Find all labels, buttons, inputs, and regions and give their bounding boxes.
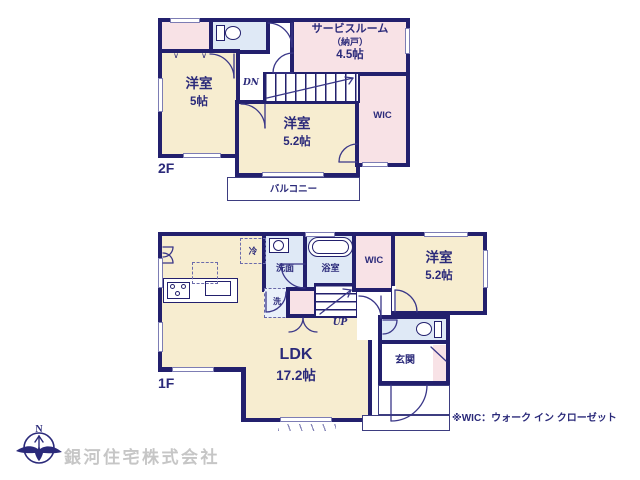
room-label-laundry: 洗 [264,297,290,307]
washbasin-bowl-icon [273,240,284,251]
window-hatch-ticks [278,424,336,431]
room-label-entrance: 玄関 [380,355,430,368]
toilet-bowl-icon-2f [225,26,241,40]
porch-step-1f [362,415,450,431]
window-2f [183,153,221,158]
room-name: LDK [246,345,346,365]
stairs-up-label: UP [330,318,350,329]
bedroom-door-gap-1f [392,286,396,311]
window-1f [280,417,332,422]
window-1f [424,232,468,237]
service-room-name: サービスルーム [295,23,405,37]
window-1f [158,322,163,352]
closet-door-mark: ∨ [170,51,182,61]
company-name: 銀河住宅株式会社 [64,443,220,468]
window-1f [483,250,488,288]
room-size: 5.2帖 [395,269,483,283]
closet-door-mark: ∨ [198,51,210,61]
floor-label-2f: 2F [158,160,192,178]
window-2f [405,28,410,54]
compass-icon: N [14,418,66,474]
toilet-bowl-icon-1f [416,322,432,336]
window-2f [362,162,388,167]
stove-burner-icon [170,284,175,289]
floorplan-page: バルコニー サービスルーム （納戸） 4.5帖 洋室 5帖 洋室 5.2帖 WI… [0,0,640,480]
stairs-down-label: DN [241,78,261,89]
window-1f [172,367,214,372]
room-name: 洋室 [247,116,347,133]
room-label-washroom: 洗面 [262,263,308,274]
floor-label-1f: 1F [158,375,192,393]
window-1f [158,258,163,288]
service-room-sub: （納戸） [295,37,405,48]
room-size: 5.2帖 [247,135,347,149]
porch-1f [378,385,450,415]
room-label-bedroom52-2f: 洋室 5.2帖 [247,116,347,149]
room-name: 洋室 [160,76,238,93]
room-size: 5帖 [160,95,238,109]
compass-north-label: N [35,424,43,435]
bathtub-inner-icon [312,240,349,254]
service-room-size: 4.5帖 [295,48,405,62]
toilet-tank-icon-1f [434,321,442,338]
room-size: 17.2帖 [246,368,346,385]
kitchen-cabinet [192,262,218,284]
wic-note: ※WIC：ウォーク イン クローゼット [452,413,637,426]
room-name: 洋室 [395,250,483,267]
room-label-service: サービスルーム （納戸） 4.5帖 [295,23,405,62]
shoe-closet-1f [433,345,446,381]
staircase-2f [263,72,360,103]
stove-burner-icon [181,284,186,289]
room-label-fridge: 冷 [240,246,266,257]
room-label-wic-1f: WIC [352,255,396,267]
room-label-bathroom: 浴室 [303,263,358,274]
window-2f [170,18,200,23]
room-label-ldk: LDK 17.2帖 [246,345,346,385]
stove-burner-icon [175,291,180,296]
room-label-bedroom52-1f: 洋室 5.2帖 [395,250,483,283]
room-label-bedroom5-2f: 洋室 5帖 [160,76,238,109]
room-label-wic-2f: WIC [355,110,410,122]
window-1f [305,232,335,237]
toilet-tank-icon-2f [216,25,225,41]
balcony-label: バルコニー [227,184,360,196]
